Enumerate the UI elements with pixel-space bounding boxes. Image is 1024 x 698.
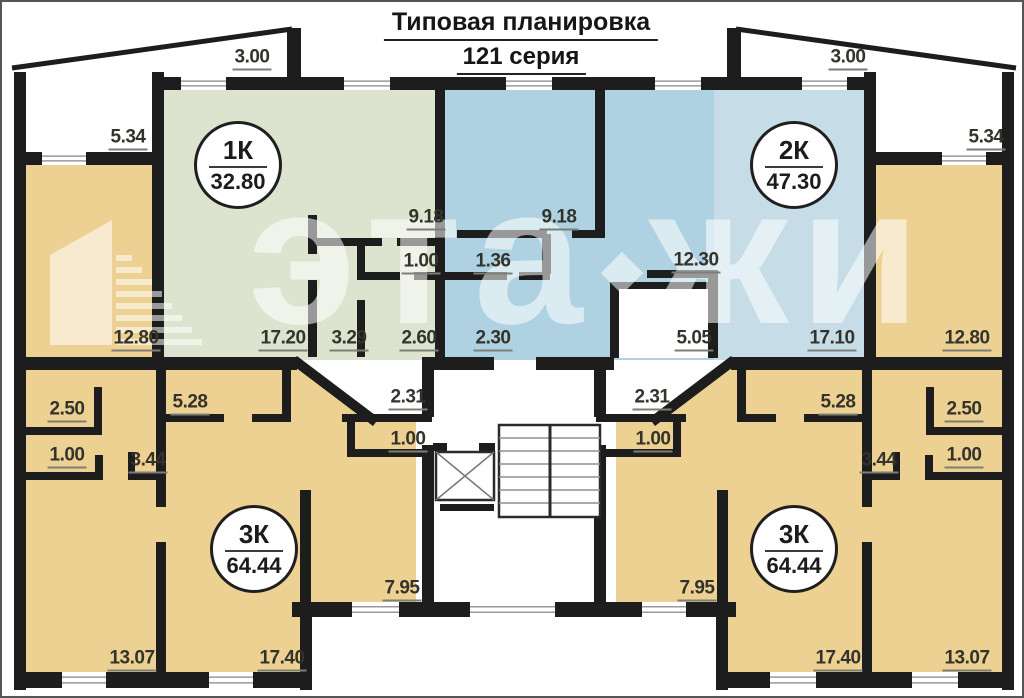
floorplan-canvas: этажи Типовая планировка 121 серия 3.003… xyxy=(0,0,1024,698)
plan-title-line2: 121 серия xyxy=(457,43,586,75)
plan-title: Типовая планировка 121 серия xyxy=(384,8,658,75)
entrance-porch-area xyxy=(310,615,718,690)
stairs xyxy=(499,425,600,517)
floorplan-drawing xyxy=(2,2,1024,698)
plan-title-line1: Типовая планировка xyxy=(384,8,658,41)
apartment-1k-area xyxy=(162,87,442,360)
